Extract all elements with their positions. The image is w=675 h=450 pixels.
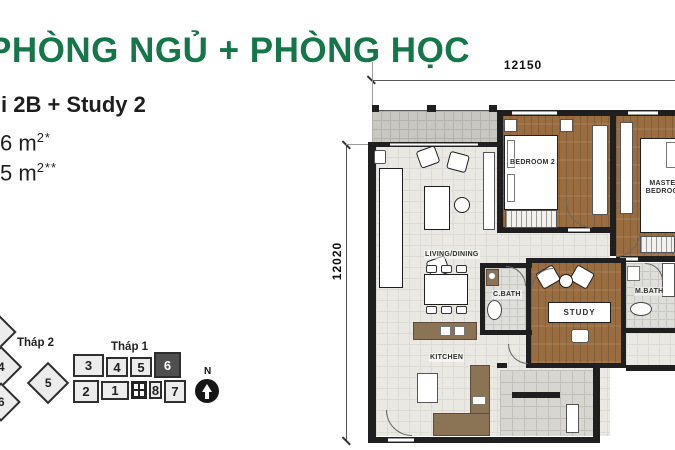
dining-chair-2 [441, 265, 452, 273]
cbath-toilet [487, 300, 502, 320]
mbath-toilet [630, 302, 652, 316]
thap2-unit-4: 4 [0, 346, 22, 388]
area-line-1: 6 m2* [0, 130, 51, 156]
thap1-unit-5: 5 [130, 357, 152, 377]
wall-cbath-left [480, 263, 485, 335]
island-sink-2 [454, 326, 465, 336]
study-chair [571, 329, 589, 343]
dining-chair-6 [456, 306, 467, 314]
bedroom2-nightstand-1 [504, 119, 517, 132]
cbath-label: C.BATH [492, 290, 522, 299]
tv-console [483, 152, 495, 230]
wall-master-suite-bottom [626, 365, 675, 371]
bedroom2-label: BEDROOM 2 [509, 158, 556, 167]
area-value-2: 5 m [0, 160, 37, 185]
kitchen-counter-bottom [433, 413, 490, 436]
unit-type-label: i 2B + Study 2 [1, 92, 146, 118]
dim-width-label: 12150 [478, 58, 568, 72]
mbath-sink [627, 266, 640, 281]
compass-n-label: N [204, 366, 211, 377]
dining-chair-5 [441, 306, 452, 314]
coffee-table [424, 186, 450, 230]
wall-study-bottom [526, 363, 626, 368]
dim-extension-left [346, 144, 368, 145]
thap2-unit-5: 5 [27, 362, 69, 404]
wall-utility-inner [512, 392, 560, 398]
dining-chair-4 [426, 306, 437, 314]
area-value-1: 6 m [0, 130, 37, 155]
thap1-unit-3: 3 [73, 354, 104, 377]
page-title: PHÒNG NGỦ + PHÒNG HỌC [0, 31, 470, 71]
utility-appliance [566, 404, 579, 433]
dim-extension-top [372, 62, 373, 108]
master-pillow [666, 142, 675, 168]
dining-table [424, 274, 468, 305]
thap1-unit-6-highlighted: 6 [154, 352, 181, 378]
entry-door-gap [388, 438, 414, 442]
wall-utility-right [593, 368, 600, 443]
elevator-core [131, 381, 147, 399]
master-bedroom-label: MASTER BEDROOM [641, 180, 675, 196]
master-wardrobe [640, 236, 675, 253]
dim-line-left [346, 145, 347, 442]
thap1-unit-7: 7 [164, 380, 186, 403]
page: PHÒNG NGỦ + PHÒNG HỌC i 2B + Study 2 6 m… [0, 0, 675, 450]
wall-bedroom2-master [610, 110, 616, 233]
wall-study-right [621, 258, 626, 368]
ac-unit-icon [374, 150, 386, 164]
bedroom2-pillow-2 [507, 174, 515, 202]
bedroom2-door-gap [568, 228, 590, 232]
living-room-label: LIVING/DINING [424, 250, 480, 259]
thap2-unit-6: 6 [0, 382, 21, 422]
master-closet [620, 122, 633, 214]
area-line-2: 5 m2** [0, 160, 57, 186]
balcony-post-1 [372, 105, 379, 112]
area-sup-2: 2** [37, 160, 57, 175]
study-desk: STUDY [548, 302, 611, 323]
study-label: STUDY [563, 308, 595, 317]
island-sink-1 [440, 326, 451, 336]
study-round-table [559, 274, 573, 288]
side-table [454, 197, 470, 213]
fridge [417, 373, 438, 403]
bedroom2-nightstand-2 [560, 119, 573, 132]
kitchen-label: KITCHEN [429, 353, 464, 362]
wall-left [368, 142, 376, 443]
wall-utility-stub [497, 363, 507, 368]
cbath-sink [488, 272, 496, 280]
north-arrow-icon [195, 379, 219, 403]
balcony-post-3 [489, 105, 497, 112]
wall-bedroom2-left [497, 110, 503, 233]
wall-cbath-bottom [480, 330, 532, 335]
bedroom2-wardrobe [505, 210, 557, 228]
area-sup-1: 2* [37, 130, 51, 145]
sofa [379, 168, 403, 288]
wall-study-top [526, 258, 626, 263]
window-master [628, 111, 658, 115]
window-bedroom2 [512, 111, 557, 115]
master-hall-floor [626, 333, 675, 365]
utility-floor [500, 370, 593, 436]
thap1-unit-8: 8 [149, 381, 162, 399]
dining-chair-3 [456, 265, 467, 273]
kitchen-counter-vertical [470, 365, 490, 416]
mbath-label: M.BATH [634, 287, 665, 296]
balcony-post-2 [427, 105, 436, 112]
bedroom2-desk [592, 125, 608, 215]
thap1-unit-4: 4 [106, 357, 128, 377]
thap1-label: Tháp 1 [111, 341, 148, 353]
thap1-unit-1: 1 [101, 381, 129, 400]
dim-line-top [372, 80, 675, 81]
dining-chair-1 [426, 265, 437, 273]
wall-mbath-bottom [626, 328, 675, 333]
cooktop [472, 396, 486, 405]
thap2-label: Tháp 2 [17, 337, 54, 349]
dim-height-label: 12020 [330, 226, 344, 296]
thap1-unit-2: 2 [73, 380, 99, 403]
